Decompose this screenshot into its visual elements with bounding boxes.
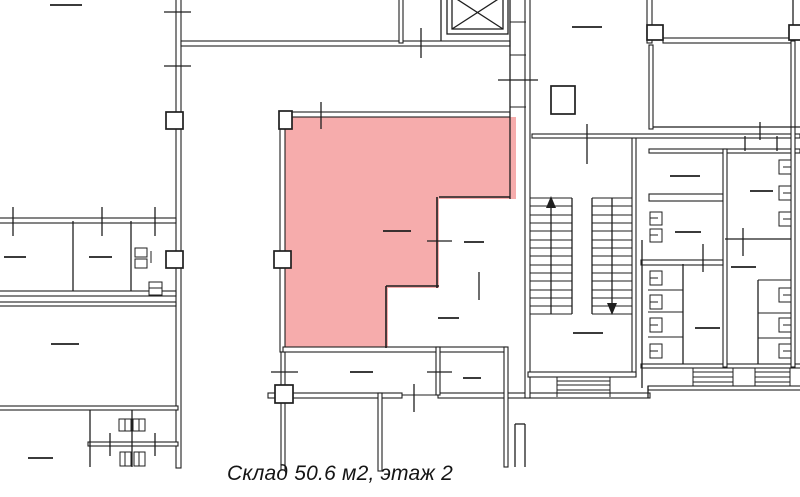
stall-fixture-icon — [779, 212, 791, 226]
staircase — [530, 196, 632, 315]
stairs-up-arrow-icon — [546, 196, 556, 314]
stall-fixture-icon — [650, 229, 662, 242]
stall-fixture-icon — [779, 318, 791, 332]
fixtures — [119, 160, 791, 466]
stall-fixture-icon — [650, 295, 662, 309]
window-icon — [693, 368, 733, 386]
caption-text: Склад 50.6 м2, этаж 2 — [180, 462, 500, 486]
door-ladder-icon — [149, 282, 162, 295]
stall-fixture-icon — [650, 344, 662, 358]
toilet-icon — [135, 248, 151, 268]
floor-plan — [0, 0, 800, 497]
partition-walls — [73, 0, 800, 467]
sink-icon — [120, 452, 131, 466]
window-icon — [755, 368, 790, 386]
sink-icon — [133, 419, 145, 431]
stall-fixture-icon — [779, 344, 791, 358]
sink-icon — [134, 452, 145, 466]
sink-icon — [119, 419, 131, 431]
stall-fixture-icon — [650, 212, 662, 225]
stall-fixture-icon — [779, 186, 791, 200]
floor-plan-page: Склад 50.6 м2, этаж 2 — [0, 0, 800, 497]
stall-fixture-icon — [779, 160, 791, 174]
stall-fixture-icon — [650, 318, 662, 332]
elevator-shaft — [447, 0, 508, 34]
highlighted-room[interactable] — [285, 117, 516, 350]
stall-fixture-icon — [650, 271, 662, 285]
columns — [166, 25, 800, 403]
stall-fixture-icon — [779, 288, 791, 302]
